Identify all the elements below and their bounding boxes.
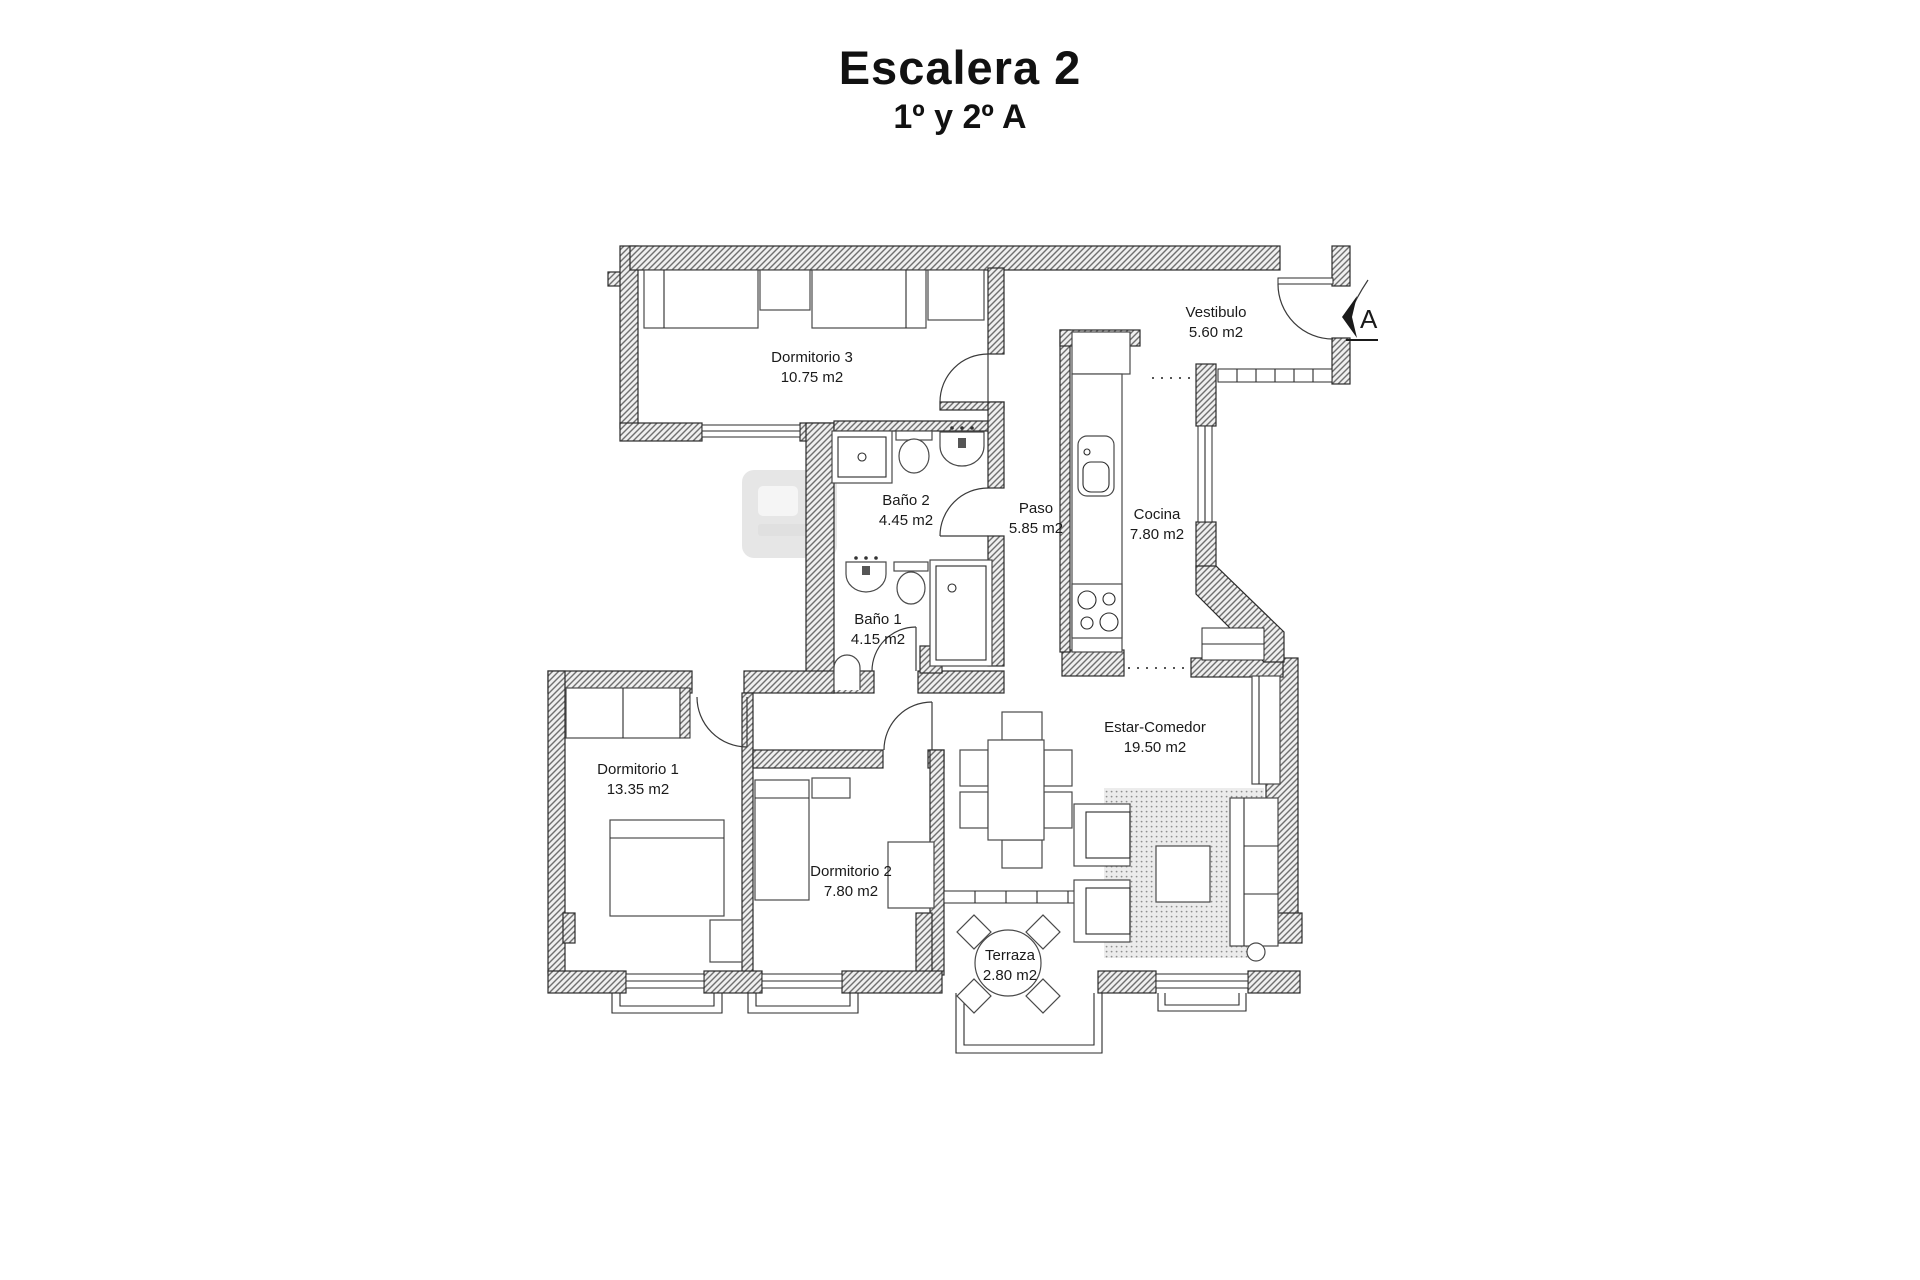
toilet-icon-bano1 (894, 562, 928, 604)
svg-text:7.80 m2: 7.80 m2 (1130, 526, 1184, 543)
wall (916, 913, 932, 975)
closet-icon-dormitorio3 (928, 270, 984, 320)
entrance-door-leaf (1278, 278, 1333, 284)
armchair-icon-a (1074, 804, 1130, 866)
wall (620, 246, 638, 428)
bed-icon-dormitorio3-a (644, 270, 758, 328)
wall (620, 423, 702, 441)
kitchen-sink-icon (1078, 436, 1114, 496)
nightstand-icon-dormitorio1 (710, 920, 742, 962)
wall (1062, 650, 1124, 676)
window-bay-estar (1158, 993, 1246, 1011)
window-bay-dormitorio1 (612, 993, 722, 1013)
svg-text:Terraza: Terraza (985, 947, 1036, 964)
room-label-estar: Estar-Comedor 19.50 m2 (1104, 719, 1206, 756)
wall (1060, 330, 1070, 652)
svg-text:Vestibulo: Vestibulo (1186, 304, 1247, 321)
svg-text:13.35 m2: 13.35 m2 (607, 781, 670, 798)
stove-icon (1072, 584, 1122, 638)
entrance-door-arc (1278, 284, 1333, 339)
sink-icon-bano1 (846, 556, 886, 592)
floor-lamp-icon (1247, 943, 1265, 961)
wardrobe-icon-dormitorio1 (566, 688, 690, 738)
svg-text:Baño 1: Baño 1 (854, 611, 902, 628)
room-label-paso: Paso 5.85 m2 (1009, 500, 1063, 537)
svg-text:10.75 m2: 10.75 m2 (781, 369, 844, 386)
wall (548, 971, 626, 993)
wall (704, 971, 762, 993)
floor-plan: A Dormitorio 3 10.75 m2 Vestibulo 5.60 m… (0, 0, 1920, 1280)
shower-icon-bano1 (930, 560, 992, 666)
window-bay-dormitorio2 (748, 993, 858, 1013)
wall (918, 671, 1004, 693)
door-arc-bano2 (940, 488, 988, 536)
wall (806, 423, 834, 693)
wall (744, 671, 834, 693)
wall (834, 421, 1000, 431)
coffee-table-icon (1156, 846, 1210, 902)
svg-text:2.80 m2: 2.80 m2 (983, 967, 1037, 984)
svg-text:19.50 m2: 19.50 m2 (1124, 739, 1187, 756)
svg-text:Dormitorio 2: Dormitorio 2 (810, 863, 892, 880)
bed-icon-dormitorio2 (755, 780, 809, 900)
wall (1196, 364, 1216, 426)
cabinet-icon-estar (1252, 676, 1280, 784)
room-label-dormitorio2: Dormitorio 2 7.80 m2 (810, 863, 892, 900)
room-label-bano2: Baño 2 4.45 m2 (879, 492, 933, 529)
room-label-vestibulo: Vestibulo 5.60 m2 (1186, 304, 1247, 341)
wall (1196, 522, 1216, 570)
bidet-icon-bano1 (834, 655, 860, 690)
svg-text:5.85 m2: 5.85 m2 (1009, 520, 1063, 537)
wall (988, 268, 1004, 354)
wall (563, 913, 575, 943)
nightstand-icon-dormitorio2 (812, 778, 850, 798)
wall (1098, 971, 1156, 993)
room-label-bano1: Baño 1 4.15 m2 (851, 611, 905, 648)
svg-text:Paso: Paso (1019, 500, 1053, 517)
door-arc-dormitorio2 (884, 702, 932, 750)
svg-text:Baño 2: Baño 2 (882, 492, 930, 509)
wall (988, 402, 1004, 488)
armchair-icon-b (1074, 880, 1130, 942)
entrance-label: A (1360, 304, 1378, 334)
dining-table-icon (960, 712, 1072, 868)
door-arc-dormitorio1 (697, 697, 747, 747)
svg-text:Dormitorio 1: Dormitorio 1 (597, 761, 679, 778)
entrance-marker: A (1342, 280, 1378, 340)
wall (1332, 338, 1350, 384)
svg-text:4.45 m2: 4.45 m2 (879, 512, 933, 529)
wall (842, 971, 942, 993)
wall (630, 246, 1280, 270)
entrance-arrow-icon (1342, 296, 1357, 338)
desk-icon-dormitorio2 (888, 842, 934, 908)
svg-text:Estar-Comedor: Estar-Comedor (1104, 719, 1206, 736)
toilet-icon-bano2 (896, 431, 932, 473)
wall (1332, 246, 1350, 286)
nightstand-icon-dormitorio3 (760, 270, 810, 310)
bed-icon-dormitorio1 (610, 820, 724, 916)
sink-icon-bano2 (940, 426, 984, 466)
svg-text:Cocina: Cocina (1134, 506, 1181, 523)
sofa-icon (1230, 798, 1278, 946)
room-label-cocina: Cocina 7.80 m2 (1130, 506, 1184, 543)
wall (753, 750, 883, 768)
room-label-dormitorio1: Dormitorio 1 13.35 m2 (597, 761, 679, 798)
svg-text:Dormitorio 3: Dormitorio 3 (771, 349, 853, 366)
bed-icon-dormitorio3-b (812, 270, 926, 328)
door-arc-dormitorio3 (940, 354, 988, 402)
svg-text:4.15 m2: 4.15 m2 (851, 631, 905, 648)
svg-text:5.60 m2: 5.60 m2 (1189, 324, 1243, 341)
room-label-dormitorio3: Dormitorio 3 10.75 m2 (771, 349, 853, 386)
wall (1248, 971, 1300, 993)
svg-text:7.80 m2: 7.80 m2 (824, 883, 878, 900)
shower-icon-bano2 (832, 431, 892, 483)
